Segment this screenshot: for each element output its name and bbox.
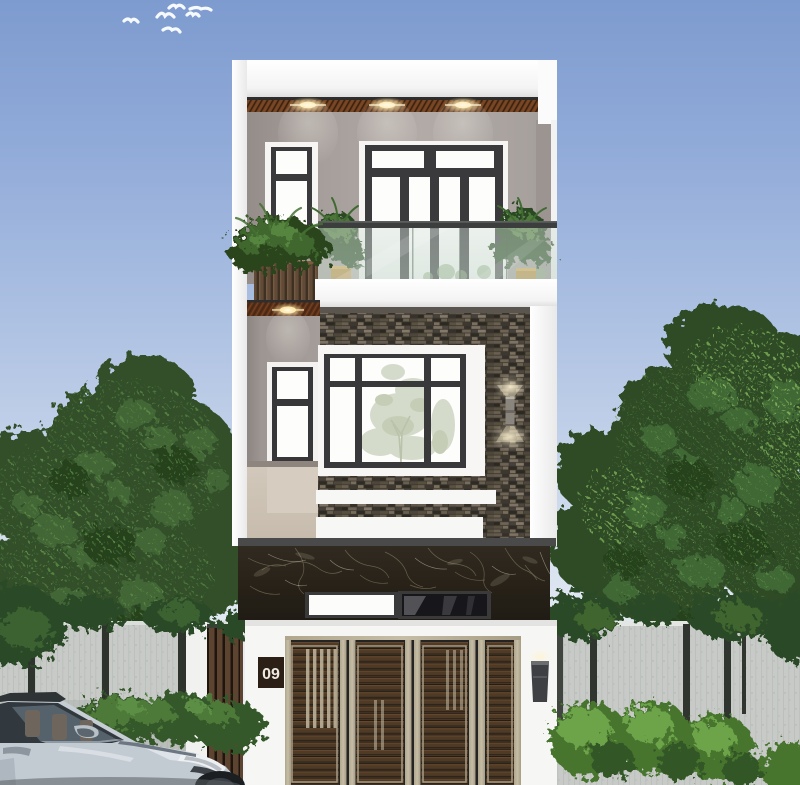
svg-text:09: 09 bbox=[262, 666, 280, 683]
